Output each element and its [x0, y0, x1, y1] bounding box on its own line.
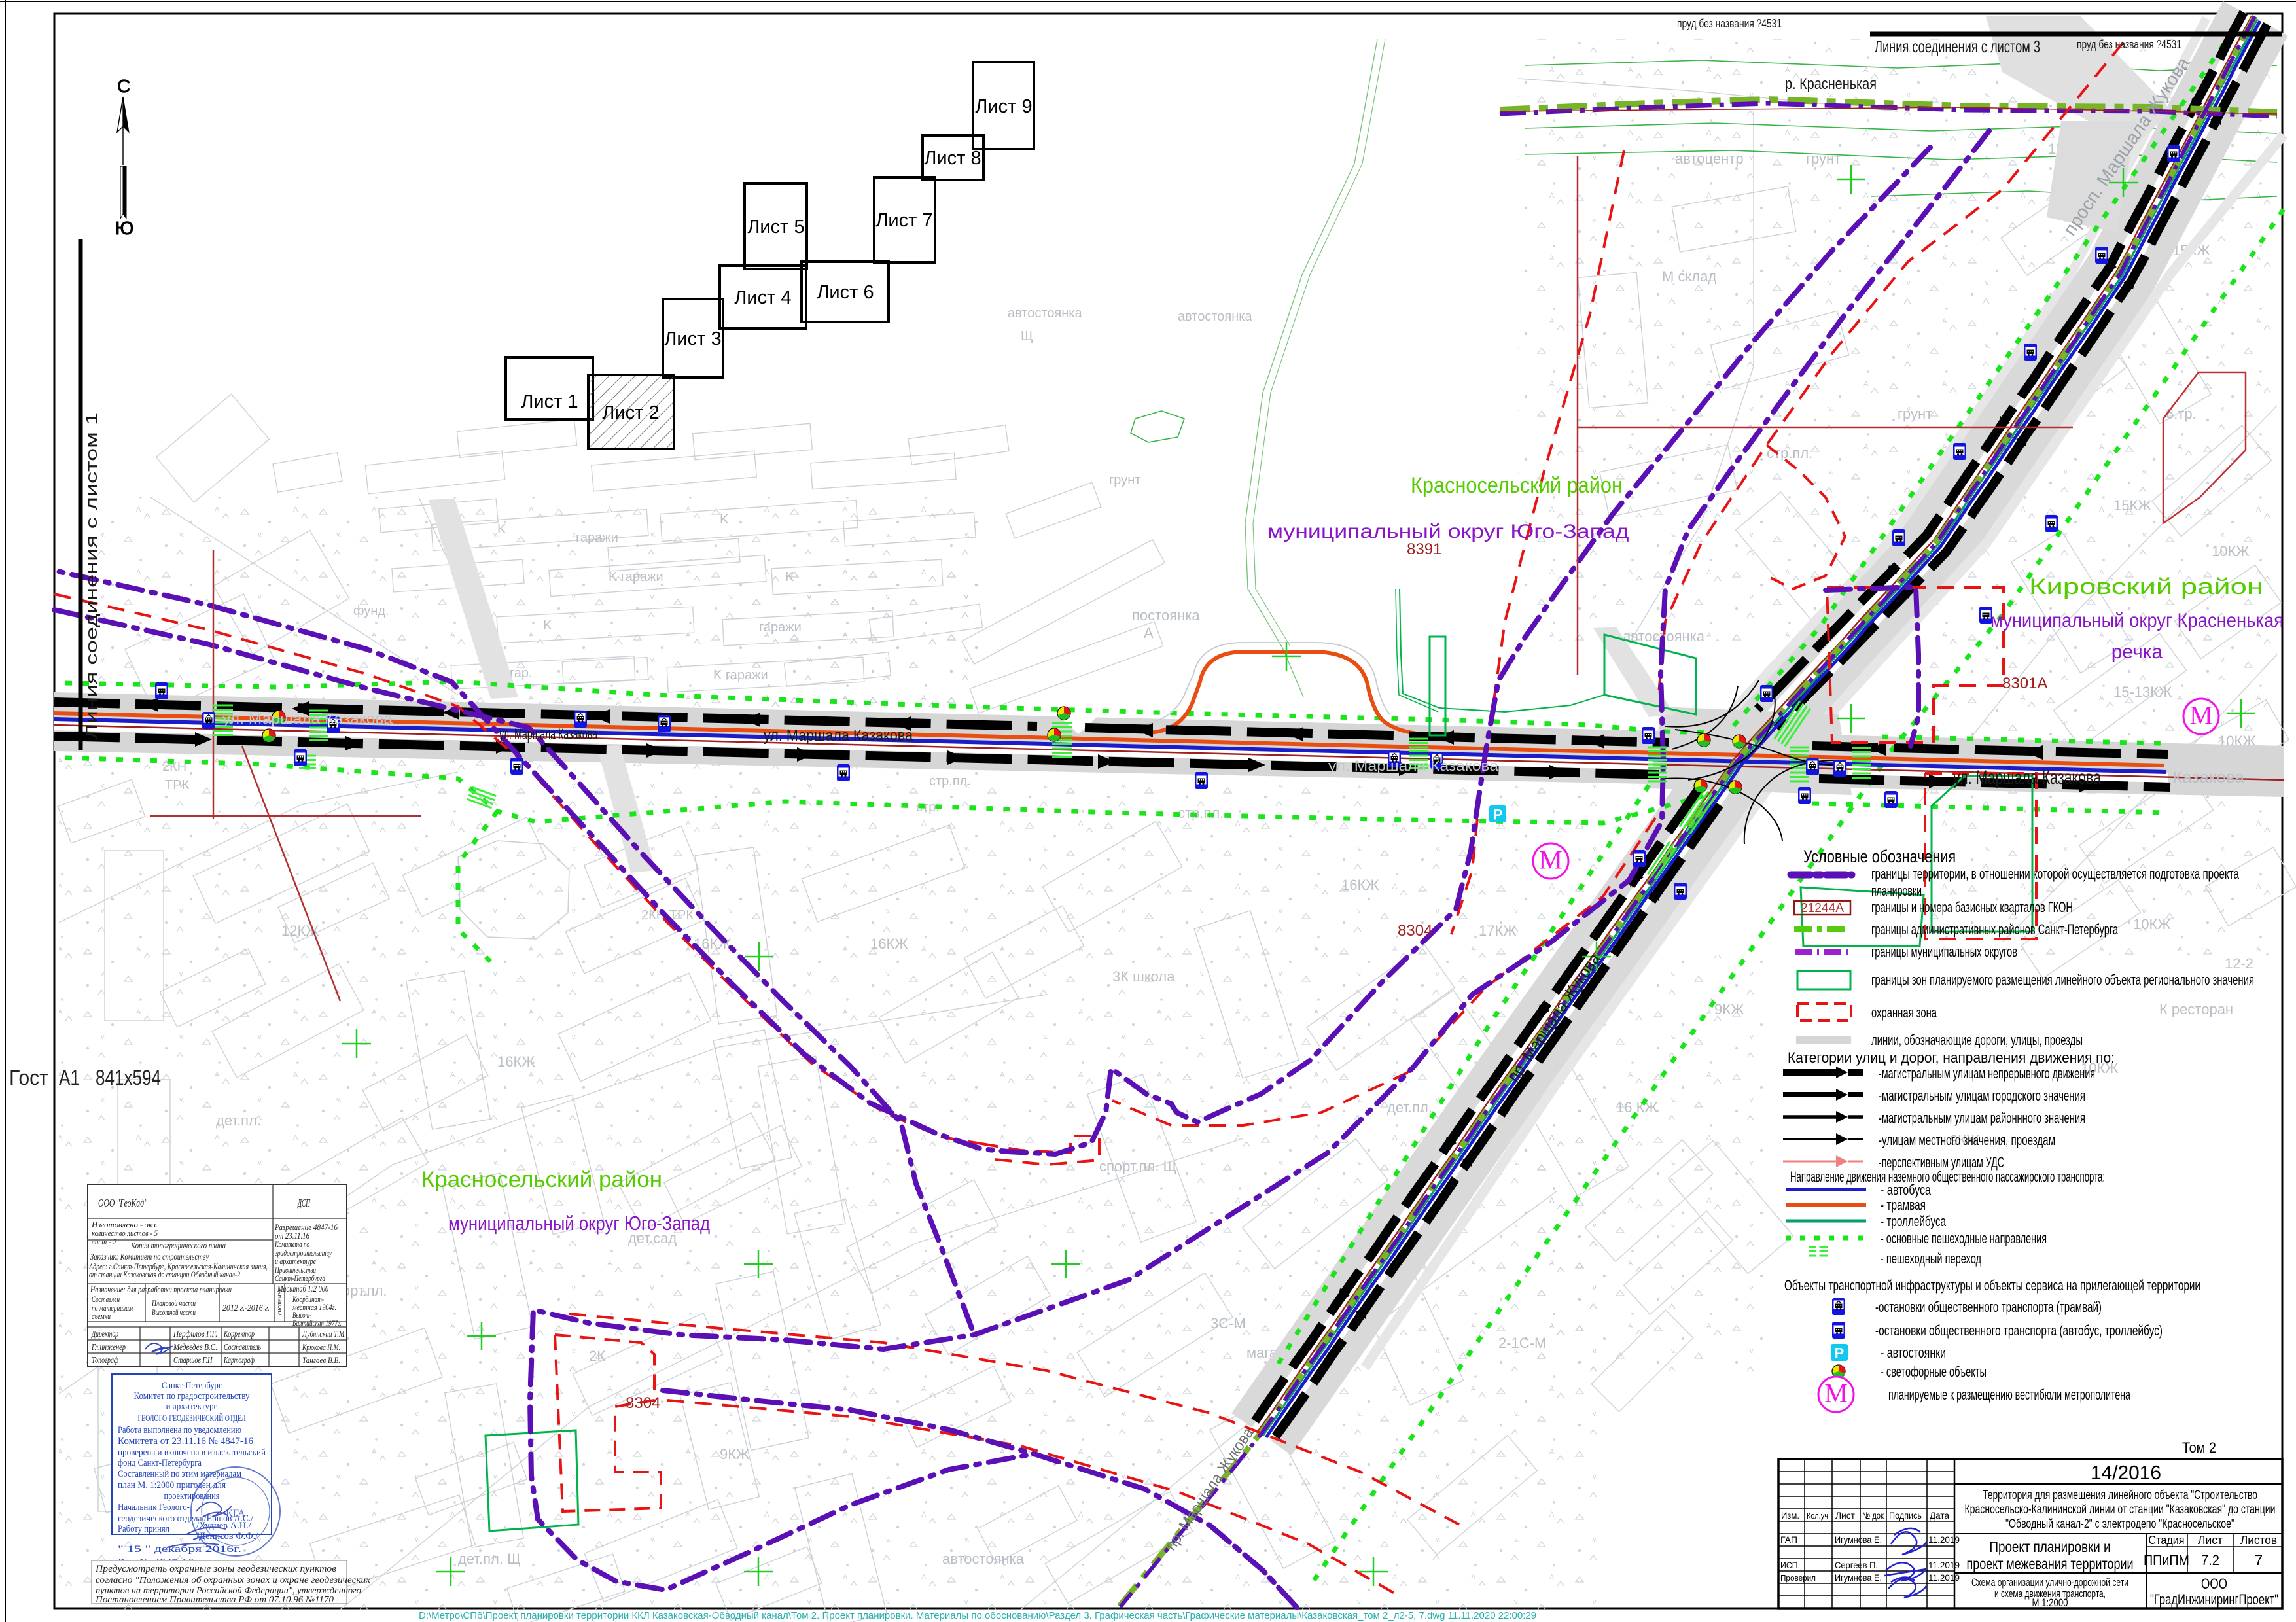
- svg-text:3К школа: 3К школа: [1112, 968, 1175, 985]
- svg-text:9КЖ: 9КЖ: [720, 1446, 750, 1462]
- svg-text:дет.пл.: дет.пл.: [1387, 1099, 1432, 1116]
- svg-text:15-13КЖ: 15-13КЖ: [2113, 684, 2172, 700]
- svg-text:Направление движения наземного: Направление движения наземного обществен…: [1790, 1169, 2105, 1185]
- svg-text:Начальник Геолого-: Начальник Геолого-: [118, 1502, 190, 1513]
- svg-text:841х594: 841х594: [96, 1066, 161, 1089]
- svg-text:11.2019: 11.2019: [1928, 1534, 1960, 1545]
- svg-text:Том 2: Том 2: [2182, 1439, 2216, 1456]
- svg-text:А: А: [1144, 625, 1154, 641]
- svg-text:гаражи: гаражи: [576, 531, 618, 545]
- svg-text:Плановой части: Плановой части: [151, 1298, 196, 1308]
- svg-text:Перфилов Г.Г.: Перфилов Г.Г.: [173, 1330, 217, 1339]
- svg-text:11.2019: 11.2019: [1928, 1560, 1960, 1570]
- svg-text:10КЖ: 10КЖ: [2133, 916, 2171, 932]
- svg-text:ООО "ГеоКад": ООО "ГеоКад": [98, 1197, 148, 1209]
- svg-text:21244А: 21244А: [1801, 901, 1845, 915]
- svg-text:пруд без названия ?4531: пруд без названия ?4531: [1677, 17, 1782, 30]
- svg-text:Игумнова Е.: Игумнова Е.: [1835, 1572, 1882, 1583]
- svg-text:Сергеев П.: Сергеев П.: [1835, 1560, 1878, 1570]
- svg-text:муниципальный округ Красненька: муниципальный округ Красненькая: [1990, 610, 2284, 631]
- svg-text:Медведев В.С.: Медведев В.С.: [173, 1343, 217, 1352]
- svg-text:-остановки общественного транс: -остановки общественного транспорта (тра…: [1875, 1299, 2102, 1315]
- svg-text:Условные обозначения: Условные обозначения: [1803, 847, 1956, 866]
- svg-text:Корректор: Корректор: [223, 1330, 255, 1339]
- svg-text:- светофорные объекты: - светофорные объекты: [1881, 1364, 1987, 1380]
- svg-text:Лист: Лист: [1835, 1510, 1856, 1521]
- svg-text:Комитета от 23.11.16 № 484: Комитета от 23.11.16 № 4847-16: [118, 1436, 253, 1447]
- svg-text:ГАП: ГАП: [1780, 1534, 1797, 1545]
- svg-text:2012 г.-2016 г.: 2012 г.-2016 г.: [222, 1303, 270, 1313]
- svg-text:-магистральным улицам городско: -магистральным улицам городского значени…: [1879, 1087, 2085, 1104]
- svg-text:17КЖ: 17КЖ: [1479, 923, 1517, 939]
- svg-text:стр.пл.: стр.пл.: [1767, 445, 1812, 461]
- svg-text:K гаражи: K гаражи: [609, 570, 663, 584]
- svg-text:Линия соединения с листом: Линия соединения с листом 1: [83, 412, 101, 739]
- svg-text:планировки: планировки: [1871, 883, 1922, 899]
- svg-text:№ док: № док: [1862, 1510, 1884, 1521]
- svg-text:Назначение: для разработки про: Назначение: для разработки проекта плани…: [90, 1284, 232, 1294]
- svg-text:Лист 2: Лист 2: [602, 402, 659, 423]
- svg-text:ул. Маршала Казакова: ул. Маршала Казакова: [764, 727, 913, 745]
- svg-text:ул. Маршала Казакова: ул. Маршала Казакова: [1953, 767, 2101, 788]
- svg-text:Гост: Гост: [9, 1066, 48, 1089]
- svg-text:системы: системы: [276, 1290, 283, 1315]
- svg-text:М: М: [1539, 845, 1563, 874]
- svg-text:Тангаев В.В.: Тангаев В.В.: [302, 1355, 340, 1365]
- svg-text:2КН: 2КН: [162, 760, 186, 774]
- svg-text:границы зон планируемого разме: границы зон планируемого размещения лине…: [1871, 972, 2254, 988]
- svg-text:Лист 9: Лист 9: [975, 96, 1032, 117]
- svg-text:лист - 2: лист - 2: [91, 1237, 116, 1246]
- svg-text:K: K: [785, 570, 794, 584]
- svg-text:ул. Маршала Казакова: ул. Маршала Казакова: [1328, 758, 1499, 774]
- svg-text:Проверил: Проверил: [1780, 1573, 1816, 1583]
- svg-text:7: 7: [2255, 1552, 2263, 1568]
- svg-text:Подпись: Подпись: [1889, 1510, 1922, 1521]
- svg-text:Составленный по этим материала: Составленный по этим материалам: [118, 1469, 241, 1479]
- svg-text:- троллейбуса: - троллейбуса: [1881, 1213, 1947, 1229]
- svg-text:муниципальный округ Юго-Запад: муниципальный округ Юго-Запад: [1267, 521, 1629, 542]
- svg-text:ООО: ООО: [2201, 1576, 2227, 1592]
- svg-text:проектирования: проектирования: [164, 1491, 220, 1502]
- svg-text:P: P: [1493, 806, 1503, 822]
- svg-text:Масштаб 1:2 000: Масштаб 1:2 000: [277, 1284, 328, 1294]
- svg-text:Лист 3: Лист 3: [664, 328, 721, 349]
- svg-text:-улицам местного значения, про: -улицам местного значения, проездам: [1879, 1132, 2055, 1148]
- svg-text:границы муниципальных округов: границы муниципальных округов: [1871, 943, 2017, 960]
- svg-text:Листов: Листов: [2240, 1534, 2277, 1547]
- svg-text:Предусмотреть охранные зоны ге: Предусмотреть охранные зоны геодезически…: [95, 1564, 337, 1574]
- svg-text:Игумнова Е.: Игумнова Е.: [1835, 1534, 1882, 1545]
- svg-text:Крюкова Н.М.: Крюкова Н.М.: [302, 1342, 340, 1352]
- svg-text:Директор: Директор: [91, 1330, 118, 1339]
- svg-text:грунт: грунт: [1109, 473, 1140, 487]
- svg-text:Заказчик: Комитиет по строител: Заказчик: Комитиет по строительству: [90, 1252, 209, 1262]
- svg-text:Линия соединения с листом: Линия соединения с листом 3: [1875, 37, 2040, 56]
- svg-text:пруд без названия ?4531: пруд без названия ?4531: [2077, 38, 2181, 51]
- svg-text:Копия топографического плана: Копия топографического плана: [130, 1241, 226, 1251]
- svg-text:автостоянка: автостоянка: [1178, 309, 1252, 324]
- svg-text:8391: 8391: [1407, 540, 1441, 558]
- svg-text:Лист: Лист: [2198, 1534, 2223, 1547]
- svg-text:автостоянка: автостоянка: [1008, 306, 1082, 321]
- svg-text:Балтийская 1977г.: Балтийская 1977г.: [292, 1318, 342, 1328]
- svg-text:Красносельско-Калининской лини: Красносельско-Калининской линии от станц…: [1965, 1503, 2276, 1517]
- svg-text:согласно "Положения об охранны: согласно "Положения об охранных зонах и …: [96, 1576, 371, 1585]
- svg-text:2-1С-М: 2-1С-М: [1498, 1335, 1546, 1351]
- svg-text:постоянка: постоянка: [1132, 607, 1200, 624]
- svg-text:пунктов на территории Российск: пунктов на территории Российской Федерац…: [96, 1586, 361, 1596]
- svg-text:- пешеходный переход: - пешеходный переход: [1881, 1250, 1981, 1267]
- svg-text:стр.пл.: стр.пл.: [1178, 805, 1224, 821]
- svg-text:Лубянская Т.М.: Лубянская Т.М.: [302, 1329, 346, 1339]
- svg-text:"ГрадИнжинирингПроект": "ГрадИнжинирингПроект": [2150, 1591, 2278, 1608]
- svg-text:от станции Казаковская до стан: от станции Казаковская до станции Обводн…: [89, 1270, 240, 1279]
- svg-text:Лист 4: Лист 4: [734, 287, 791, 308]
- svg-text:16КЖ: 16КЖ: [497, 1053, 535, 1070]
- svg-text:8301А: 8301А: [2002, 675, 2047, 692]
- svg-text:12-2: 12-2: [2225, 955, 2253, 972]
- svg-text:автоцентр: автоцентр: [1675, 150, 1744, 167]
- svg-text:-магистральным улицам непрерыв: -магистральным улицам непрерывного движе…: [1879, 1065, 2095, 1082]
- svg-text:границы и номера базисных квар: границы и номера базисных кварталов ГКОН: [1871, 899, 2073, 915]
- svg-text:Кол.уч.: Кол.уч.: [1807, 1511, 1830, 1521]
- svg-text:Лист 7: Лист 7: [875, 210, 932, 231]
- svg-text:15КЖ: 15КЖ: [2113, 497, 2151, 514]
- svg-text:Постановлением Правительства Р: Постановлением Правительства РФ от 07.10…: [95, 1595, 334, 1605]
- svg-text:Категории улиц и дорог, направ: Категории улиц и дорог, направления движ…: [1788, 1049, 2115, 1066]
- svg-text:K: K: [720, 512, 729, 527]
- svg-text:фонд Санкт-Петербурга: фонд Санкт-Петербурга: [118, 1458, 202, 1468]
- svg-text:" 15 " декабря 2016г: " 15 " декабря 2016г.: [118, 1544, 241, 1555]
- svg-text:P: P: [1835, 1345, 1845, 1361]
- svg-text:- трамвая: - трамвая: [1881, 1197, 1926, 1213]
- svg-text:Лист 6: Лист 6: [817, 282, 874, 303]
- svg-text:границы административных район: границы административных районов Санкт-П…: [1871, 921, 2119, 938]
- svg-text:Работу принял: Работу принял: [118, 1524, 169, 1534]
- svg-text:11.2019: 11.2019: [1928, 1572, 1960, 1583]
- svg-text:Топограф: Топограф: [92, 1356, 118, 1366]
- svg-text:8304: 8304: [1398, 922, 1432, 940]
- svg-text:р. Красненькая: р. Красненькая: [1785, 75, 1877, 93]
- svg-text:8304: 8304: [626, 1394, 660, 1412]
- svg-text:фунд.: фунд.: [353, 604, 389, 618]
- svg-text:грунт: грунт: [1806, 150, 1841, 167]
- svg-text:16 КЖ: 16 КЖ: [1616, 1099, 1658, 1116]
- svg-text:планируемые к размещению вести: планируемые к размещению вестибюли метро…: [1888, 1386, 2130, 1403]
- svg-text:М: М: [1824, 1378, 1848, 1407]
- svg-text:речка: речка: [2111, 641, 2163, 663]
- svg-text:- основные пешеходные направле: - основные пешеходные направления: [1881, 1230, 2047, 1246]
- svg-text:проверена и включена в изыскат: проверена и включена в изыскательский: [118, 1447, 266, 1458]
- svg-text:Составитель: Составитель: [224, 1343, 261, 1352]
- svg-text:-магистральным улицам районнно: -магистральным улицам районнного значени…: [1879, 1110, 2085, 1126]
- svg-text:Дата: Дата: [1930, 1510, 1949, 1521]
- svg-text:Санкт-Петербург: Санкт-Петербург: [162, 1381, 222, 1391]
- svg-text:грунт: грунт: [1898, 406, 1932, 422]
- svg-text:2К: 2К: [589, 1348, 605, 1364]
- svg-text:границы территории, в отношени: границы территории, в отношении которой …: [1871, 866, 2240, 882]
- svg-text:Гл.инженер: Гл.инженер: [91, 1343, 126, 1352]
- svg-text:Лист 1: Лист 1: [521, 391, 578, 412]
- svg-text:-остановки общественного транс: -остановки общественного транспорта (авт…: [1875, 1322, 2163, 1339]
- svg-text:- автобуса: - автобуса: [1881, 1182, 1932, 1198]
- svg-text:А1: А1: [59, 1066, 80, 1089]
- svg-text:Картограф: Картограф: [223, 1356, 255, 1366]
- svg-text:М 1:2000: М 1:2000: [2032, 1596, 2068, 1609]
- svg-text:Стадия: Стадия: [2149, 1534, 2185, 1547]
- svg-text:автостоянка: автостоянка: [942, 1551, 1025, 1567]
- svg-text:"Обводный канал-2" с электроде: "Обводный канал-2" с электродепо "Красно…: [2005, 1517, 2234, 1531]
- svg-text:Ю: Ю: [115, 218, 133, 238]
- svg-text:М склад: М склад: [1662, 268, 1716, 285]
- svg-text:Санкт-Петербурга: Санкт-Петербурга: [275, 1273, 325, 1283]
- svg-text:Красносельский район: Красносельский район: [421, 1167, 662, 1192]
- svg-text:Работа выполнена по уведомлени: Работа выполнена по уведомлению: [118, 1425, 241, 1436]
- svg-text:Красносельский район: Красносельский район: [1411, 473, 1623, 498]
- svg-text:3С-М: 3С-М: [1210, 1315, 1246, 1331]
- svg-text:Проект планировки и: Проект планировки и: [1990, 1538, 2111, 1555]
- svg-text:муниципальный округ Юго-Запад: муниципальный округ Юго-Запад: [448, 1212, 710, 1235]
- svg-text:съемки: съемки: [92, 1311, 111, 1321]
- svg-text:Кировский район: Кировский район: [2029, 574, 2263, 599]
- svg-text:14/2016: 14/2016: [2091, 1461, 2161, 1484]
- svg-text:Казакова: Казакова: [2172, 769, 2245, 786]
- svg-text:линии, обозначающие дороги, ул: линии, обозначающие дороги, улицы, проез…: [1871, 1032, 2083, 1048]
- svg-text:16КЖ: 16КЖ: [1341, 877, 1379, 893]
- svg-text:K гаражи: K гаражи: [713, 668, 768, 682]
- svg-text:ИСП.: ИСП.: [1780, 1560, 1800, 1570]
- svg-text:проект межевания территории: проект межевания территории: [1967, 1555, 2134, 1572]
- svg-text:K: K: [497, 522, 506, 537]
- svg-text:Изм.: Изм.: [1781, 1510, 1799, 1521]
- svg-text:Лист 8: Лист 8: [924, 148, 981, 169]
- svg-text:ул. Маршала Казакова: ул. Маршала Казакова: [499, 726, 597, 743]
- svg-text:D:\Метро\СПб\Проект планировки: D:\Метро\СПб\Проект планировки территори…: [419, 1610, 1536, 1621]
- svg-text:дет.пл.: дет.пл.: [216, 1112, 261, 1129]
- svg-text:Высотной части: Высотной части: [152, 1307, 196, 1317]
- svg-text:16КЖ: 16КЖ: [870, 936, 908, 952]
- svg-text:охранная зона: охранная зона: [1871, 1004, 1937, 1021]
- svg-text:гаражи: гаражи: [759, 620, 802, 635]
- svg-text:K: K: [543, 618, 552, 633]
- svg-text:дет.пл. Щ: дет.пл. Щ: [458, 1551, 521, 1567]
- svg-text:9КЖ: 9КЖ: [1714, 1001, 1744, 1017]
- svg-text:Щ: Щ: [1021, 329, 1033, 344]
- svg-text:10КЖ: 10КЖ: [2212, 543, 2250, 559]
- svg-text:ТРК: ТРК: [165, 778, 190, 792]
- svg-text:ГЕОЛОГО-ГЕОДЕЗИЧЕСКИЙ ОТДЕЛ: ГЕОЛОГО-ГЕОДЕЗИЧЕСКИЙ ОТДЕЛ: [138, 1413, 246, 1424]
- svg-text:Объекты транспортной инфрастру: Объекты транспортной инфраструктуры и об…: [1784, 1277, 2200, 1294]
- svg-text:Старшов Г.Н.: Старшов Г.Н.: [173, 1356, 214, 1366]
- svg-text:К ресторан: К ресторан: [2159, 1001, 2233, 1017]
- svg-text:и архитектуре: и архитектуре: [166, 1402, 218, 1412]
- svg-text:Территория для размещения лине: Территория для размещения линейного объе…: [1983, 1489, 2257, 1502]
- svg-text:С: С: [117, 76, 130, 96]
- svg-text:ППиПМ: ППиПМ: [2144, 1552, 2189, 1568]
- svg-text:- автостоянки: - автостоянки: [1881, 1345, 1946, 1361]
- svg-text:ул. Маршала Казакова: ул. Маршала Казакова: [222, 711, 393, 727]
- svg-text:Комитет по градостроительству: Комитет по градостроительству: [134, 1391, 251, 1402]
- svg-text:М: М: [2189, 700, 2213, 730]
- svg-text:стр.пл.: стр.пл.: [929, 774, 971, 788]
- svg-text:ДСП: ДСП: [297, 1197, 311, 1209]
- svg-text:7.2: 7.2: [2201, 1552, 2219, 1568]
- svg-text:Лист 5: Лист 5: [747, 217, 804, 238]
